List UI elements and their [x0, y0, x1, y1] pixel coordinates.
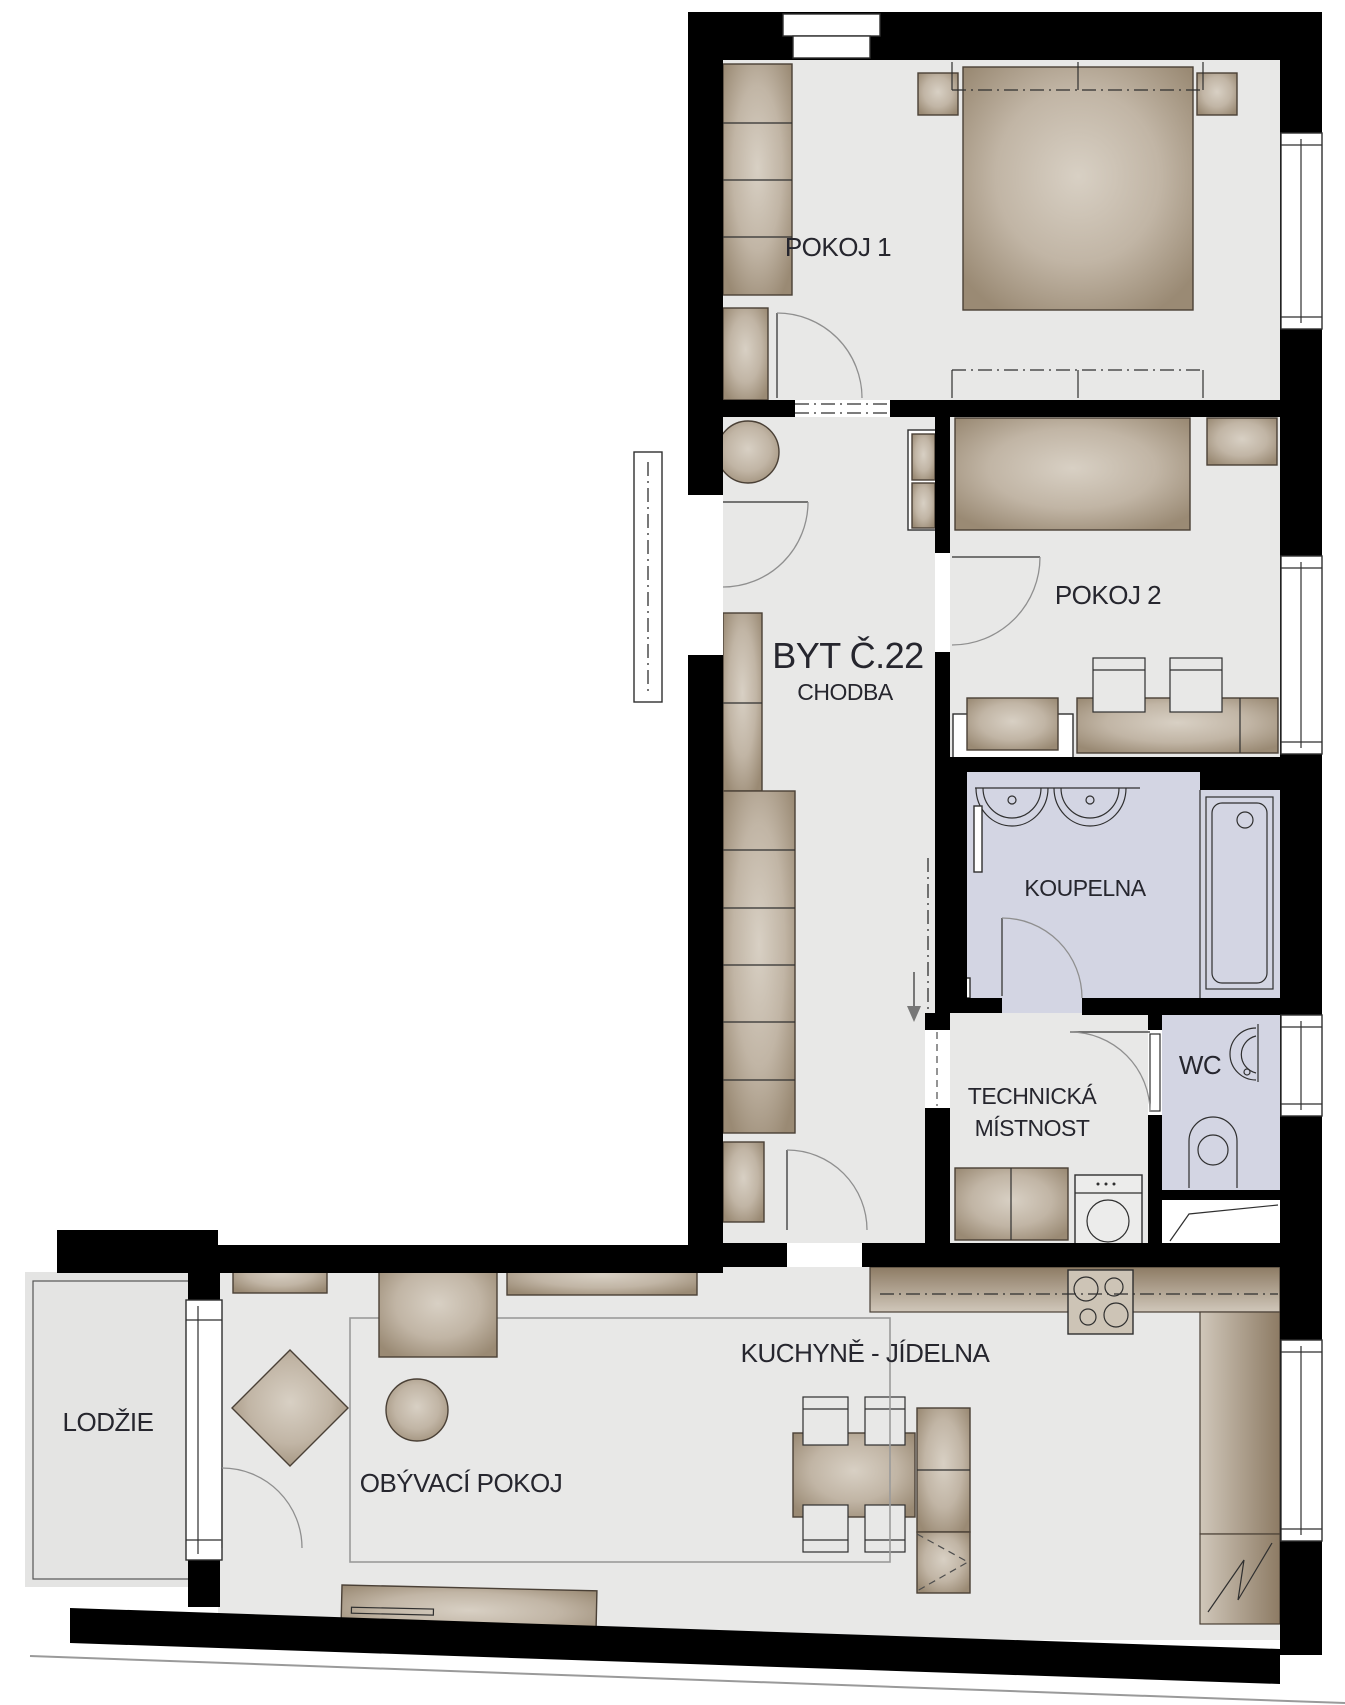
bed	[955, 418, 1190, 530]
label-loggia: LODŽIE	[63, 1407, 154, 1437]
double-bed	[963, 67, 1193, 310]
chair	[1170, 658, 1222, 712]
chair	[803, 1505, 848, 1552]
chair	[803, 1397, 848, 1445]
cabinet	[723, 308, 768, 400]
room2-door-opening	[935, 553, 950, 652]
room1-sliding-door	[795, 400, 890, 417]
cabinet	[723, 1142, 764, 1222]
label-kitchen: KUCHYNĚ - JÍDELNA	[741, 1338, 991, 1368]
tech-room-opening	[925, 1030, 950, 1108]
label-room1: POKOJ 1	[785, 232, 891, 262]
wall-loggia-lower	[188, 1560, 220, 1607]
window-wc-east	[1281, 1015, 1322, 1116]
wall-kitchen-north-a	[723, 1243, 787, 1267]
sofa	[379, 1260, 497, 1357]
label-technical-line2: MÍSTNOST	[975, 1115, 1090, 1141]
chair	[865, 1505, 905, 1552]
stool	[717, 421, 779, 483]
label-wc: WC	[1179, 1050, 1221, 1080]
tall-cabinet	[723, 613, 762, 791]
wall-south-wing-north-a	[57, 1230, 218, 1273]
window-room1-north	[783, 14, 880, 58]
window-kitchen-east	[1281, 1340, 1322, 1541]
wc-door-opening	[1148, 1030, 1162, 1115]
chair	[1093, 658, 1145, 712]
cooktop	[1068, 1270, 1133, 1334]
chair	[865, 1397, 905, 1445]
label-bathroom: KOUPELNA	[1024, 875, 1146, 901]
label-living: OBÝVACÍ POKOJ	[360, 1468, 563, 1498]
wall-bath-south-a	[935, 998, 1002, 1013]
floor-plan: POKOJ 1 POKOJ 2 BYT Č.22 CHODBA KOUPELNA…	[0, 0, 1345, 1705]
label-apartment: BYT Č.22	[772, 635, 923, 676]
coffee-table	[386, 1379, 448, 1441]
label-room2: POKOJ 2	[1055, 580, 1161, 610]
wall-bath-south-b	[1082, 998, 1280, 1015]
label-hallway: CHODBA	[797, 679, 894, 705]
floor-wc	[1162, 1015, 1280, 1190]
fridge	[1200, 1534, 1280, 1624]
hall-wardrobe	[723, 791, 795, 1133]
wall-tub-north	[1200, 757, 1280, 790]
cabinet	[1207, 418, 1277, 465]
kitchen-counter-right	[1200, 1312, 1280, 1534]
wall-wc-south	[1162, 1190, 1280, 1200]
shoe-cabinet	[912, 434, 935, 480]
bench	[967, 698, 1058, 750]
wall-bath-west	[935, 772, 967, 1013]
washing-machine	[1075, 1175, 1142, 1245]
label-technical-line1: TECHNICKÁ	[968, 1083, 1098, 1109]
wall-kitchen-north-b	[862, 1243, 1280, 1267]
wall-south-wing-north-b	[218, 1245, 723, 1273]
base-cabinet	[917, 1532, 970, 1593]
window-room2-east	[1281, 556, 1322, 754]
technical-room-fixtures	[955, 1168, 1142, 1245]
shaft-niche	[1162, 1200, 1280, 1243]
kitchen-door-opening	[787, 1243, 862, 1267]
wall-loggia-upper	[188, 1273, 220, 1300]
shoe-cabinet	[912, 483, 935, 528]
radiator	[974, 806, 982, 872]
window-loggia-door	[186, 1300, 222, 1560]
window-room1-east	[1281, 133, 1322, 329]
